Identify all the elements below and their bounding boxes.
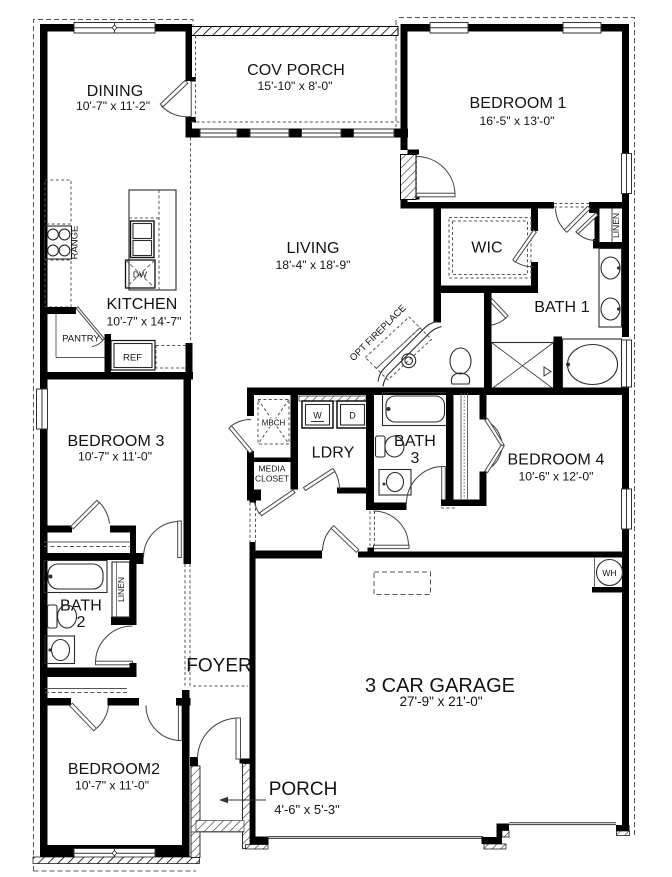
svg-text:REF: REF <box>123 353 142 364</box>
svg-text:LDRY: LDRY <box>312 445 355 462</box>
svg-text:RANGE: RANGE <box>70 226 81 260</box>
svg-text:BEDROOM 4: BEDROOM 4 <box>508 452 605 469</box>
svg-text:27'-9" x 21'-0": 27'-9" x 21'-0" <box>399 694 482 709</box>
svg-text:DW: DW <box>133 270 147 280</box>
svg-text:LINEN: LINEN <box>116 577 126 602</box>
svg-text:LINEN: LINEN <box>611 213 621 238</box>
svg-text:KITCHEN: KITCHEN <box>107 296 178 313</box>
svg-text:FOYER: FOYER <box>186 656 251 677</box>
svg-text:LIVING: LIVING <box>286 240 339 257</box>
svg-text:BATH 1: BATH 1 <box>534 299 589 316</box>
svg-text:DINING: DINING <box>87 83 144 100</box>
svg-text:10'-7" x 11'-0": 10'-7" x 11'-0" <box>75 779 149 793</box>
svg-text:16'-5" x 13'-0": 16'-5" x 13'-0" <box>480 114 555 128</box>
svg-text:2: 2 <box>77 614 86 631</box>
svg-text:WH: WH <box>602 568 616 578</box>
svg-text:10'-7" x 11'-2": 10'-7" x 11'-2" <box>76 99 150 113</box>
svg-text:WIC: WIC <box>471 240 502 257</box>
svg-text:D: D <box>349 411 356 421</box>
svg-text:4'-6" x 5'-3": 4'-6" x 5'-3" <box>274 802 340 817</box>
svg-text:3: 3 <box>411 450 420 467</box>
svg-text:BATH: BATH <box>394 433 436 450</box>
svg-text:PORCH: PORCH <box>269 779 338 800</box>
svg-text:10'-7" x 11'-0": 10'-7" x 11'-0" <box>78 450 152 464</box>
svg-text:10'-7" x 14'-7": 10'-7" x 14'-7" <box>107 315 182 329</box>
svg-text:MEDIA: MEDIA <box>259 464 286 474</box>
svg-text:15'-10" x 8'-0": 15'-10" x 8'-0" <box>258 79 333 93</box>
svg-text:BEDROOM 3: BEDROOM 3 <box>68 433 165 450</box>
svg-text:BEDROOM 1: BEDROOM 1 <box>470 95 567 112</box>
svg-text:18'-4" x 18'-9": 18'-4" x 18'-9" <box>276 258 351 272</box>
svg-text:MBCH: MBCH <box>262 419 286 428</box>
svg-text:10'-6" x 12'-0": 10'-6" x 12'-0" <box>519 470 594 484</box>
svg-text:PANTRY: PANTRY <box>62 334 100 345</box>
svg-text:COV PORCH: COV PORCH <box>247 62 345 79</box>
svg-text:BEDROOM2: BEDROOM2 <box>68 761 160 778</box>
svg-text:CLOSET: CLOSET <box>255 474 289 484</box>
svg-text:W: W <box>313 411 322 421</box>
svg-text:BATH: BATH <box>60 598 102 615</box>
